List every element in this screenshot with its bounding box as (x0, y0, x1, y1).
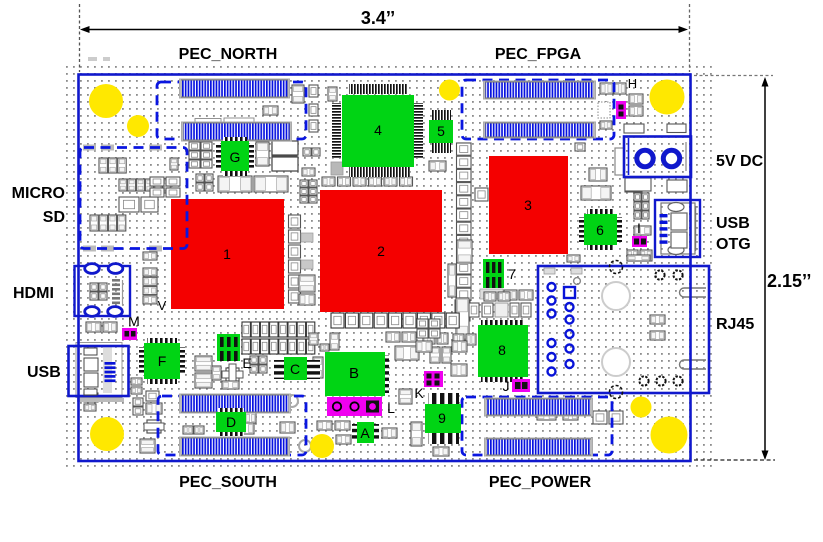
svg-text:I: I (637, 220, 641, 236)
svg-text:G: G (230, 149, 241, 165)
svg-text:B: B (349, 365, 359, 382)
svg-text:E: E (242, 355, 251, 371)
svg-text:H: H (628, 76, 637, 91)
svg-text:PEC_FPGA: PEC_FPGA (495, 46, 582, 63)
svg-text:L: L (387, 400, 395, 416)
svg-text:2.15’’: 2.15’’ (767, 271, 811, 291)
svg-text:V: V (158, 298, 167, 313)
svg-text:USB: USB (716, 215, 750, 232)
svg-text:3: 3 (524, 197, 532, 213)
svg-text:2: 2 (377, 243, 385, 259)
svg-text:OTG: OTG (716, 236, 751, 253)
svg-text:PEC_NORTH: PEC_NORTH (179, 46, 278, 63)
svg-text:PEC_SOUTH: PEC_SOUTH (179, 474, 277, 491)
svg-text:J: J (503, 378, 510, 394)
svg-text:C: C (290, 361, 300, 377)
svg-text:USB: USB (27, 364, 61, 381)
svg-text:D: D (226, 414, 236, 430)
svg-text:9: 9 (438, 410, 446, 426)
svg-text:5: 5 (437, 123, 445, 139)
svg-text:7: 7 (508, 266, 516, 282)
svg-text:8: 8 (498, 342, 506, 358)
svg-text:HDMI: HDMI (13, 285, 54, 302)
svg-text:PEC_POWER: PEC_POWER (489, 474, 592, 491)
svg-text:MICRO: MICRO (12, 185, 65, 202)
svg-text:K: K (414, 385, 424, 401)
svg-text:1: 1 (223, 246, 231, 262)
svg-text:4: 4 (374, 122, 382, 138)
svg-text:6: 6 (596, 222, 604, 238)
svg-text:3.4’’: 3.4’’ (361, 8, 395, 28)
svg-text:5V DC: 5V DC (716, 153, 764, 170)
svg-text:F: F (158, 353, 167, 369)
svg-text:RJ45: RJ45 (716, 316, 754, 333)
svg-text:SD: SD (43, 209, 65, 226)
svg-text:A: A (360, 425, 370, 441)
